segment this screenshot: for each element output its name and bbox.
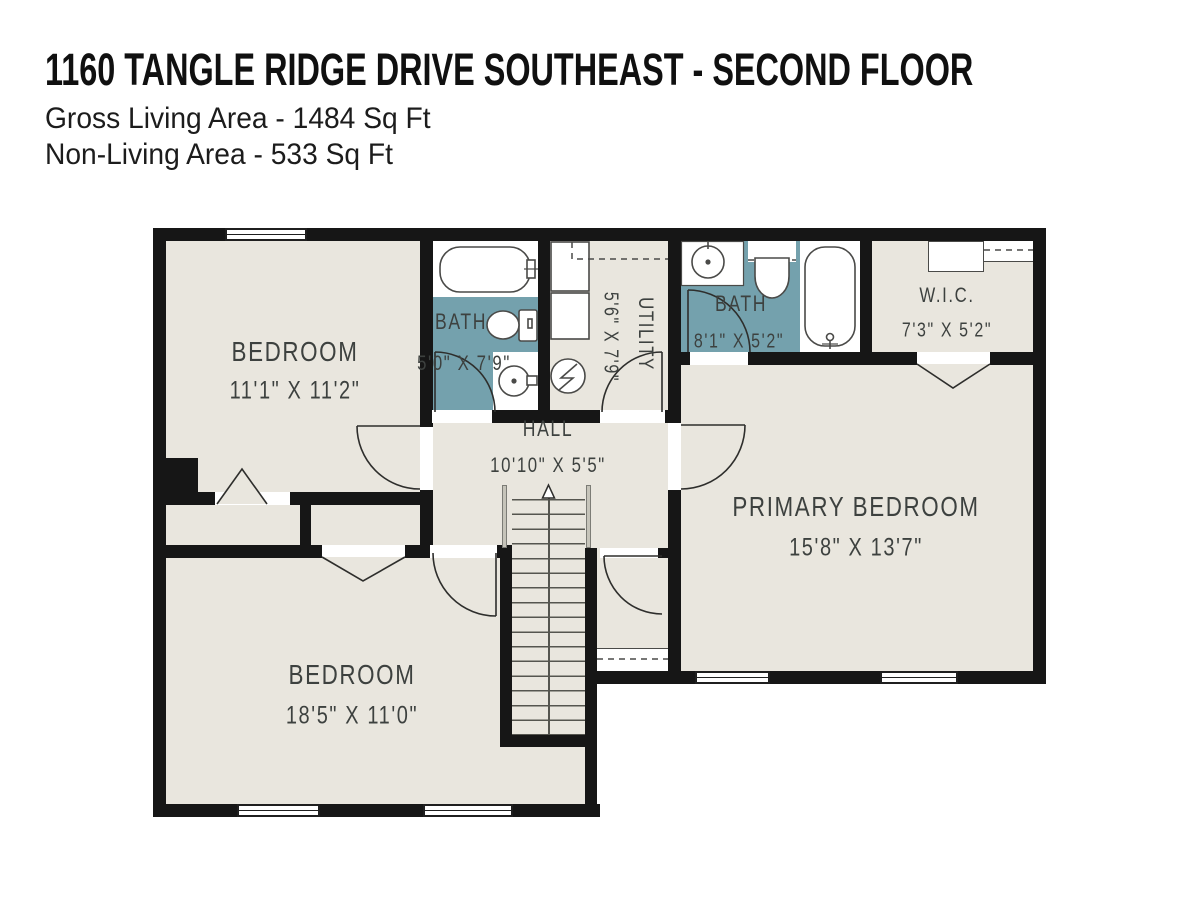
floor-plan: BEDROOM 11'1" X 11'2" BATH 5'0" X 7'9" U… [0,0,1200,900]
chimney-mass [153,458,198,497]
wall [538,241,550,413]
stair-rail [502,485,507,548]
doorway [668,423,681,490]
floorplan-page: { "header": { "title": "1160 TANGLE RIDG… [0,0,1200,900]
wall [668,352,690,365]
doorway [600,548,658,558]
room-label-utility: UTILITY [633,297,657,371]
window [880,671,958,684]
room-dims-utility: 5'6" X 7'9" [599,292,622,382]
room-label-bedroom-bottom: BEDROOM [289,659,416,691]
wall [665,410,681,423]
wall [420,241,433,427]
wall [153,804,600,817]
room-label-bath-primary: BATH [715,291,767,317]
wall [500,735,597,747]
wall [500,548,512,747]
wall [860,241,872,352]
stair-rail [586,485,591,548]
wall [1033,228,1046,684]
hall-closet-shelf [597,648,668,671]
room-label-wic: W.I.C. [919,284,974,308]
room-label-bath-main: BATH [435,309,487,335]
wall [300,505,311,545]
window [423,804,513,817]
window [237,804,320,817]
doorway [430,545,497,558]
doorway [420,427,433,490]
wall [748,352,917,365]
doorway [215,492,290,505]
room-label-primary-bedroom: PRIMARY BEDROOM [732,491,979,523]
doorway [432,410,492,423]
wall [290,492,433,505]
wall [668,490,681,684]
room-dims-bedroom-bottom: 18'5" X 11'0" [286,702,418,731]
room-dims-bedroom-top: 11'1" X 11'2" [230,377,361,406]
wall [153,545,322,558]
wic-rod-band [984,241,1033,262]
wall [405,545,430,558]
doorway [917,352,990,365]
doorway [690,352,748,365]
doorway [322,545,405,558]
room-label-hall: HALL [523,416,573,442]
window [695,671,770,684]
wall [153,228,166,817]
vanity-zone-bath-primary [681,241,744,286]
room-label-bedroom-top: BEDROOM [232,336,359,368]
room-dims-primary-bedroom: 15'8" X 13'7" [789,534,923,563]
tub-zone-bath-main [433,241,538,297]
staircase-center-line [548,487,550,734]
room-dims-bath-main: 5'0" X 7'9" [417,352,511,376]
shelf-zone-bath-primary [748,241,796,262]
doorway [600,410,665,423]
wall [668,241,681,423]
tub-zone-bath-primary [800,241,860,352]
wall [658,548,668,558]
room-dims-bath-primary: 8'1" X 5'2" [694,331,784,354]
wall [990,352,1046,365]
room-dims-hall: 10'10" X 5'5" [490,454,606,478]
window [225,228,307,241]
room-dims-wic: 7'3" X 5'2" [902,320,992,343]
wall [420,410,432,423]
wic-shelf [928,241,984,272]
